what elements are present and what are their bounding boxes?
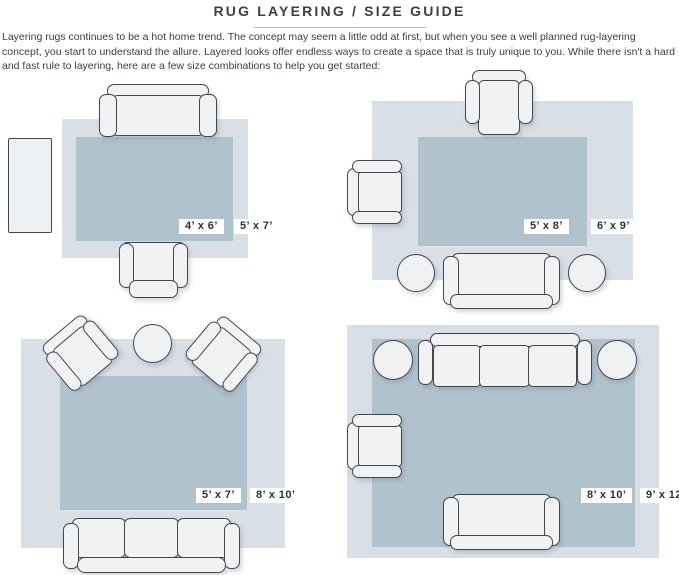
sofa-cushion bbox=[433, 345, 481, 387]
armchair-top-view bbox=[465, 70, 533, 135]
sofa-arm-right bbox=[577, 340, 592, 385]
sofa-arm-left bbox=[99, 94, 117, 137]
page-title: RUG LAYERING / SIZE GUIDE bbox=[0, 3, 679, 19]
sofa-back bbox=[450, 294, 553, 309]
armchair-seat bbox=[358, 171, 402, 213]
armchair-seat bbox=[478, 80, 520, 135]
inner-rug-size-label: 5’ x 8’ bbox=[524, 219, 569, 234]
sofa-top-view bbox=[99, 84, 217, 137]
sofa-cushion bbox=[528, 345, 577, 387]
loveseat-back bbox=[450, 535, 553, 550]
round-pouf bbox=[397, 254, 435, 292]
round-pouf bbox=[373, 340, 413, 380]
armchair-side-view bbox=[347, 158, 402, 226]
loveseat-top-view bbox=[443, 494, 560, 550]
round-pouf bbox=[597, 340, 637, 380]
sofa-cushion bbox=[72, 518, 126, 558]
armchair-back bbox=[129, 280, 178, 298]
armchair-arm-right bbox=[518, 80, 533, 124]
armchair-arm-top bbox=[352, 414, 402, 427]
outer-rug-size-label: 5’ x 7’ bbox=[234, 219, 279, 234]
outer-rug-size-label: 9’ x 12’ bbox=[640, 488, 679, 503]
armchair-arm-bottom bbox=[352, 211, 402, 224]
armchair-side-view bbox=[347, 412, 402, 480]
inner-rug-size-label: 4’ x 6’ bbox=[179, 219, 224, 234]
round-side-table bbox=[133, 324, 172, 363]
sofa-back bbox=[77, 557, 226, 573]
console-table bbox=[8, 138, 52, 233]
sofa-cushion bbox=[479, 345, 530, 387]
armchair-arm-left bbox=[465, 80, 480, 124]
sofa-arm-left bbox=[418, 340, 433, 385]
sofa-arm-right bbox=[199, 94, 217, 137]
sofa-seat bbox=[452, 253, 551, 299]
inner-rug-size-label: 5’ x 7’ bbox=[196, 488, 241, 503]
sofa-arm-right bbox=[224, 523, 240, 569]
loveseat-seat bbox=[452, 494, 551, 540]
outer-rug-size-label: 6’ x 9’ bbox=[591, 219, 636, 234]
outer-rug-size-label: 8’ x 10’ bbox=[250, 488, 301, 503]
inner-rug-size-label: 8’ x 10’ bbox=[581, 488, 632, 503]
three-seat-sofa-top-view bbox=[63, 518, 240, 573]
intro-paragraph: Layering rugs continues to be a hot home… bbox=[2, 30, 678, 74]
armchair-arm-top bbox=[352, 160, 402, 173]
title-divider bbox=[254, 27, 426, 28]
sofa-cushion bbox=[177, 518, 231, 558]
rug-size-guide-page: RUG LAYERING / SIZE GUIDE Layering rugs … bbox=[0, 0, 679, 575]
sofa-top-view bbox=[443, 253, 560, 309]
armchair-arm-bottom bbox=[352, 465, 402, 478]
sofa-cushion bbox=[124, 518, 179, 558]
three-seat-sofa-top-view bbox=[418, 333, 592, 387]
sofa-seat bbox=[113, 95, 203, 136]
armchair-seat bbox=[358, 425, 402, 467]
round-pouf bbox=[568, 254, 606, 292]
armchair-top-view bbox=[119, 242, 188, 298]
